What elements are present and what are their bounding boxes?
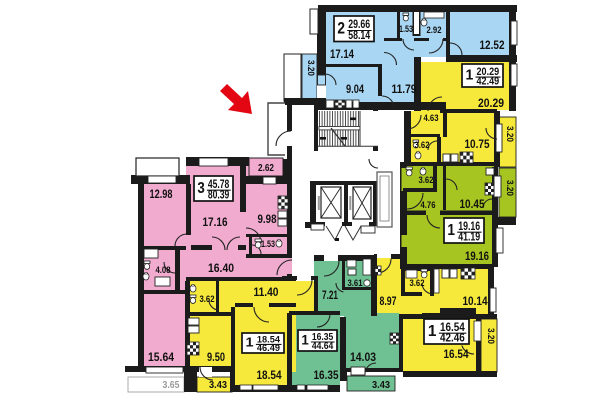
svg-text:44.64: 44.64 (312, 341, 334, 352)
svg-text:11.79: 11.79 (392, 84, 417, 96)
svg-text:1: 1 (301, 332, 309, 347)
svg-text:3.43: 3.43 (209, 380, 227, 391)
svg-text:10.75: 10.75 (465, 139, 491, 151)
svg-text:3.20: 3.20 (504, 126, 515, 142)
svg-text:3.62: 3.62 (410, 278, 425, 288)
svg-text:58.14: 58.14 (348, 28, 370, 42)
svg-text:15.64: 15.64 (148, 352, 175, 364)
svg-text:42.46: 42.46 (440, 331, 465, 345)
svg-text:7.21: 7.21 (322, 290, 338, 302)
svg-text:3.62: 3.62 (419, 175, 434, 185)
svg-text:1: 1 (465, 68, 473, 84)
svg-text:1: 1 (428, 323, 437, 340)
svg-text:18.54: 18.54 (257, 370, 283, 382)
svg-text:41.19: 41.19 (458, 230, 480, 244)
svg-text:3.62: 3.62 (200, 294, 215, 304)
svg-text:46.49: 46.49 (257, 343, 280, 354)
svg-text:3.43: 3.43 (372, 380, 390, 391)
svg-text:8.97: 8.97 (380, 296, 397, 308)
svg-text:4.63: 4.63 (424, 113, 439, 124)
svg-text:4.08: 4.08 (156, 265, 172, 276)
svg-text:10.45: 10.45 (460, 199, 486, 211)
svg-text:9.50: 9.50 (207, 352, 225, 364)
svg-text:16.54: 16.54 (444, 349, 470, 361)
svg-text:1: 1 (447, 222, 455, 239)
svg-text:3: 3 (197, 180, 204, 197)
svg-text:3.65: 3.65 (163, 380, 180, 391)
svg-text:3.61: 3.61 (348, 278, 363, 288)
svg-text:2.62: 2.62 (258, 163, 274, 174)
svg-text:9.98: 9.98 (258, 214, 278, 226)
svg-text:3.20: 3.20 (305, 60, 316, 76)
svg-text:19.16: 19.16 (465, 251, 489, 263)
svg-text:16.35: 16.35 (314, 370, 340, 382)
svg-text:14.03: 14.03 (350, 352, 376, 364)
svg-text:2.92: 2.92 (427, 25, 442, 35)
svg-text:3.20: 3.20 (485, 328, 496, 344)
svg-text:1.53: 1.53 (399, 24, 413, 34)
svg-text:11.40: 11.40 (254, 287, 279, 299)
svg-text:17.16: 17.16 (203, 217, 228, 229)
svg-text:1.53: 1.53 (261, 239, 275, 249)
svg-text:16.40: 16.40 (208, 263, 234, 275)
svg-text:9.04: 9.04 (346, 84, 364, 96)
svg-text:12.52: 12.52 (480, 40, 505, 52)
svg-text:80.39: 80.39 (208, 188, 230, 202)
svg-text:3.62: 3.62 (415, 140, 430, 150)
svg-text:2: 2 (337, 19, 345, 37)
svg-text:20.29: 20.29 (478, 98, 504, 110)
svg-text:17.14: 17.14 (330, 49, 355, 61)
svg-text:4.76: 4.76 (421, 200, 436, 211)
svg-text:3.20: 3.20 (504, 180, 515, 196)
svg-text:42.49: 42.49 (477, 76, 500, 88)
svg-text:10.14: 10.14 (463, 296, 489, 308)
svg-text:12.98: 12.98 (150, 189, 173, 201)
svg-text:1: 1 (246, 335, 254, 350)
